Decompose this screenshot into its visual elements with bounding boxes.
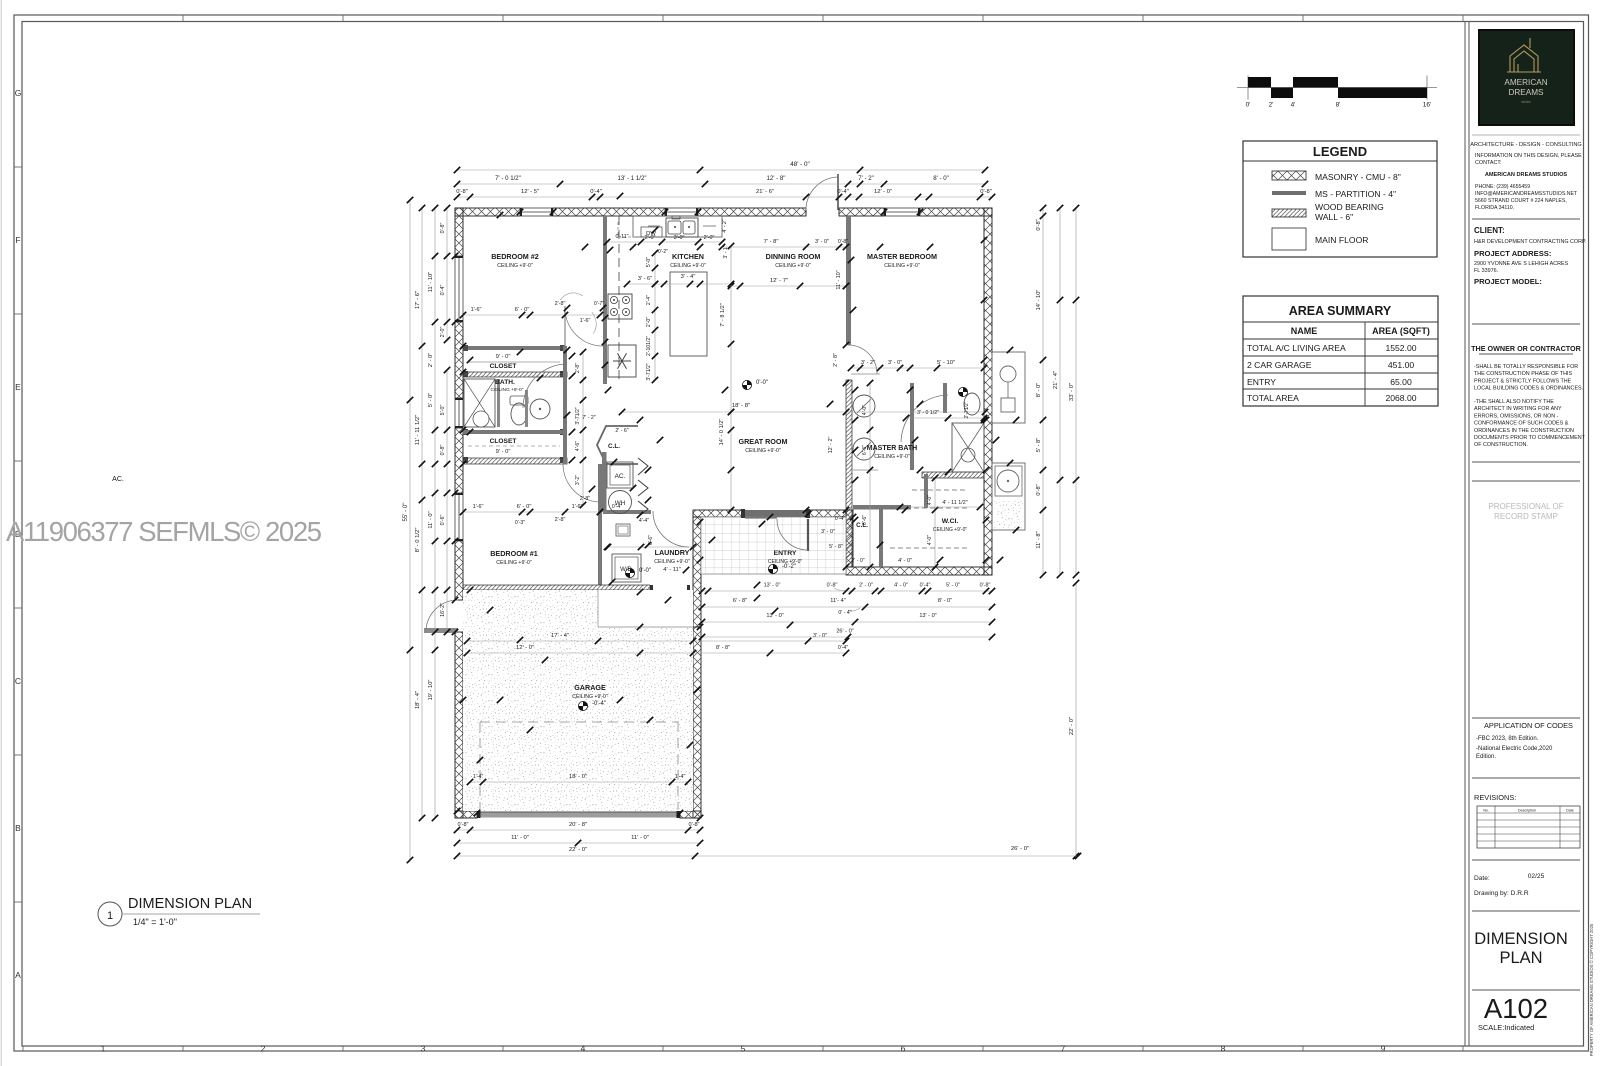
- svg-text:5' - 0": 5' - 0": [428, 393, 434, 408]
- svg-text:2'-8": 2'-8": [575, 363, 581, 373]
- svg-text:5' - 8": 5' - 8": [1036, 438, 1042, 453]
- svg-text:0'-8": 0'-8": [1036, 219, 1042, 230]
- svg-text:-THE SHALL ALSO NOTIFY: -THE SHALL ALSO NOTIFY THE: [1474, 399, 1554, 405]
- svg-text:5'-0": 5'-0": [440, 405, 446, 416]
- svg-text:studio: studio: [1521, 100, 1530, 104]
- svg-text:4: 4: [581, 1044, 586, 1054]
- svg-text:02/25: 02/25: [1528, 873, 1545, 880]
- svg-text:0'-8": 0'-8": [980, 189, 992, 195]
- svg-text:0'-8": 0'-8": [827, 583, 838, 589]
- svg-text:13' - 0": 13' - 0": [766, 613, 783, 619]
- svg-text:3'-0": 3'-0": [674, 235, 685, 241]
- svg-text:3'-71/2": 3'-71/2": [575, 407, 581, 424]
- svg-text:6' - 8": 6' - 8": [733, 598, 747, 604]
- svg-text:2' - 0": 2' - 0": [859, 583, 873, 589]
- svg-text:11' - 0": 11' - 0": [428, 511, 434, 528]
- svg-text:1: 1: [107, 910, 113, 922]
- svg-text:17' - 6": 17' - 6": [415, 291, 421, 309]
- svg-text:2' - 0": 2' - 0": [428, 353, 434, 368]
- svg-text:DOCUMENTS PRIOR TO COMMENCEMEN: DOCUMENTS PRIOR TO COMMENCEMENT: [1474, 435, 1586, 441]
- svg-text:-National Electric Code,2020: -National Electric Code,2020: [1476, 746, 1553, 752]
- svg-text:2900 YVONNE AVE S LEHIGH ACRES: 2900 YVONNE AVE S LEHIGH ACRES: [1474, 261, 1569, 267]
- svg-text:11' - 0": 11' - 0": [511, 835, 529, 841]
- svg-text:9: 9: [1381, 1044, 1386, 1054]
- svg-text:0'-4": 0'-4": [440, 285, 446, 296]
- svg-text:21' - 6": 21' - 6": [756, 189, 774, 195]
- svg-text:0'-8": 0'-8": [440, 223, 446, 234]
- svg-text:Description: Description: [1518, 809, 1536, 813]
- svg-text:C: C: [15, 676, 21, 686]
- svg-text:BATH.: BATH.: [495, 379, 515, 386]
- svg-text:6'-6": 6'-6": [862, 445, 868, 455]
- svg-text:4' - 2": 4' - 2": [722, 219, 728, 232]
- svg-text:8': 8': [1336, 102, 1341, 109]
- svg-text:1552.00: 1552.00: [1385, 343, 1416, 353]
- svg-text:7' - 8 1/2": 7' - 8 1/2": [720, 303, 726, 327]
- svg-text:4' - 0": 4' - 0": [898, 558, 912, 564]
- svg-text:DREAMS: DREAMS: [1508, 88, 1544, 97]
- svg-text:F: F: [15, 235, 20, 245]
- svg-text:MASTER BATH: MASTER BATH: [867, 445, 917, 452]
- svg-text:4'-0": 4'-0": [927, 495, 933, 505]
- svg-text:14' - 10": 14' - 10": [1036, 290, 1042, 311]
- svg-text:KITCHEN: KITCHEN: [672, 252, 704, 261]
- svg-text:11' - 11 1/2": 11' - 11 1/2": [415, 415, 421, 446]
- svg-text:ARCHITECTURE - DESIGN - CONSUL: ARCHITECTURE - DESIGN - CONSULTING: [1470, 142, 1581, 148]
- svg-text:CEILING +9'-0": CEILING +9'-0": [491, 387, 524, 393]
- svg-text:55' - 0": 55' - 0": [402, 503, 409, 522]
- svg-text:2': 2': [1269, 102, 1274, 109]
- svg-text:12' - 0": 12' - 0": [516, 645, 534, 651]
- svg-text:3' - 1": 3' - 1": [723, 245, 729, 258]
- svg-text:0'-4": 0'-4": [920, 583, 931, 589]
- svg-text:DINNING ROOM: DINNING ROOM: [766, 252, 821, 261]
- svg-text:11' - 8": 11' - 8": [1036, 531, 1042, 548]
- svg-text:PROPERTY OF AMERICAN DREAMS ST: PROPERTY OF AMERICAN DREAMS STUDIOS © CO…: [1589, 923, 1594, 1056]
- svg-text:TOTAL AREA: TOTAL AREA: [1247, 393, 1299, 403]
- svg-text:A102: A102: [1484, 993, 1548, 1024]
- svg-text:A11906377 SEFMLS© 2025: A11906377 SEFMLS© 2025: [6, 516, 322, 547]
- svg-text:2'-101/2": 2'-101/2": [646, 336, 652, 356]
- svg-text:4'-4": 4'-4": [639, 518, 649, 524]
- svg-text:MS - PARTITION - 4": MS - PARTITION - 4": [1315, 189, 1396, 199]
- svg-text:12' - 0": 12' - 0": [874, 189, 892, 195]
- svg-text:PROJECT & STRICTLY FOLLOWS: PROJECT & STRICTLY FOLLOWS THE: [1474, 378, 1572, 384]
- svg-text:2068.00: 2068.00: [1385, 393, 1416, 403]
- svg-text:ARCHITECT IN WRITING FOR: ARCHITECT IN WRITING FOR ANY: [1474, 406, 1562, 412]
- svg-text:0'-0": 0'-0": [639, 568, 651, 574]
- svg-text:11'- 4": 11'- 4": [830, 598, 845, 604]
- svg-text:INFORMATION ON THIS DESIGN, PL: INFORMATION ON THIS DESIGN, PLEASE: [1475, 153, 1582, 159]
- svg-text:0'-8": 0'-8": [440, 445, 446, 456]
- svg-text:C.L.: C.L.: [608, 443, 620, 450]
- svg-text:11' - 10": 11' - 10": [836, 270, 842, 289]
- svg-text:17' - 4": 17' - 4": [551, 633, 569, 639]
- svg-text:CEILING +9'-0": CEILING +9'-0": [654, 559, 690, 565]
- svg-text:7' - 8": 7' - 8": [764, 239, 779, 245]
- svg-text:65.00: 65.00: [1390, 377, 1412, 387]
- svg-text:451.00: 451.00: [1388, 360, 1415, 370]
- svg-text:1/4" = 1'-0": 1/4" = 1'-0": [133, 917, 177, 927]
- svg-text:4' - 0": 4' - 0": [894, 583, 908, 589]
- svg-text:2'-8": 2'-8": [555, 301, 566, 307]
- svg-text:20' - 8": 20' - 8": [569, 822, 587, 828]
- svg-text:AREA (SQFT): AREA (SQFT): [1372, 326, 1430, 336]
- svg-text:3'-2": 3'-2": [575, 475, 581, 485]
- svg-text:13' - 1 1/2": 13' - 1 1/2": [617, 175, 646, 182]
- svg-text:NAME: NAME: [1291, 326, 1318, 336]
- svg-text:-0'-4": -0'-4": [592, 701, 606, 707]
- svg-text:G: G: [15, 88, 22, 98]
- svg-text:CEILING +9'-0": CEILING +9'-0": [496, 560, 532, 566]
- svg-text:AMERICAN: AMERICAN: [1504, 78, 1547, 87]
- svg-text:0'-8": 0'-8": [838, 239, 848, 245]
- svg-text:RECORD STAMP: RECORD STAMP: [1494, 512, 1558, 521]
- svg-text:CLIENT:: CLIENT:: [1474, 226, 1505, 235]
- svg-text:8' - 0": 8' - 0": [1036, 383, 1042, 398]
- svg-text:3' - 6": 3' - 6": [638, 276, 652, 282]
- svg-text:18' - 4": 18' - 4": [415, 691, 421, 709]
- svg-text:MASTER BEDROOM: MASTER BEDROOM: [867, 252, 937, 261]
- svg-text:CEILING +9'-0": CEILING +9'-0": [745, 448, 781, 454]
- svg-text:WOOD BEARING: WOOD BEARING: [1315, 202, 1384, 212]
- svg-text:CEILING +9'-0": CEILING +9'-0": [775, 263, 811, 269]
- svg-text:MASONRY - CMU - 8": MASONRY - CMU - 8": [1315, 172, 1401, 182]
- svg-text:SCALE:Indicated: SCALE:Indicated: [1478, 1023, 1534, 1032]
- svg-text:H&R DEVELOPMENT CONTRACTING CO: H&R DEVELOPMENT CONTRACTING CORP.: [1474, 239, 1586, 245]
- svg-text:2' - 6": 2' - 6": [615, 428, 628, 434]
- svg-text:16'-2": 16'-2": [440, 603, 446, 617]
- svg-text:11' - 0": 11' - 0": [631, 835, 649, 841]
- svg-text:1'-6": 1'-6": [471, 307, 482, 313]
- svg-text:1'-4": 1'-4": [473, 774, 484, 780]
- svg-text:ENTRY: ENTRY: [1247, 377, 1276, 387]
- svg-text:0'-4": 0'-4": [612, 504, 622, 510]
- svg-text:14' - 0 1/2": 14' - 0 1/2": [719, 419, 725, 446]
- svg-text:8' - 0 1/2": 8' - 0 1/2": [415, 528, 421, 553]
- svg-text:8' - 8": 8' - 8": [716, 645, 730, 651]
- svg-text:FL 33976.: FL 33976.: [1474, 268, 1498, 274]
- svg-text:2' - 8": 2' - 8": [833, 353, 839, 367]
- svg-text:22' - 0": 22' - 0": [569, 847, 587, 853]
- svg-text:0'-2": 0'-2": [658, 249, 668, 255]
- svg-text:5' - 8": 5' - 8": [829, 544, 843, 550]
- svg-text:B: B: [15, 823, 21, 833]
- svg-text:E: E: [15, 382, 21, 392]
- svg-text:2'-0": 2'-0": [645, 235, 656, 241]
- svg-text:LEGEND: LEGEND: [1313, 144, 1367, 159]
- svg-text:-SHALL BE TOTALLY RESPONSIBLE: -SHALL BE TOTALLY RESPONSIBLE FOR: [1474, 364, 1578, 370]
- svg-text:FLORIDA 34110.: FLORIDA 34110.: [1475, 205, 1514, 211]
- svg-text:WALL - 6": WALL - 6": [1315, 212, 1353, 222]
- svg-text:3' - 4": 3' - 4": [681, 274, 696, 280]
- svg-text:2 CAR GARAGE: 2 CAR GARAGE: [1247, 360, 1312, 370]
- svg-text:THE OWNER OR CONTRACTOR: THE OWNER OR CONTRACTOR: [1471, 344, 1581, 353]
- svg-text:8' - 0": 8' - 0": [938, 598, 952, 604]
- svg-text:ORDINANCES IN THE CONSTRU: ORDINANCES IN THE CONSTRUCTION: [1474, 428, 1574, 434]
- svg-text:GREAT ROOM: GREAT ROOM: [739, 437, 788, 446]
- svg-text:MAIN FLOOR: MAIN FLOOR: [1315, 235, 1368, 245]
- svg-text:PROJECT MODEL:: PROJECT MODEL:: [1474, 277, 1542, 286]
- svg-text:Drawing by: D.R.R: Drawing by: D.R.R: [1474, 890, 1529, 897]
- svg-text:2'-0": 2'-0": [646, 317, 652, 327]
- svg-text:5' - 0": 5' - 0": [946, 583, 960, 589]
- svg-text:No.: No.: [1483, 809, 1489, 813]
- svg-text:0'-8": 0'-8": [689, 822, 700, 828]
- svg-text:CEILING +9'-0": CEILING +9'-0": [497, 263, 533, 269]
- svg-text:ERRORS, OMISSIONS, O: ERRORS, OMISSIONS, OR NON -: [1474, 413, 1559, 419]
- svg-text:12' - 8": 12' - 8": [767, 175, 786, 182]
- svg-text:2'-8": 2'-8": [580, 496, 590, 502]
- svg-text:33' - 0": 33' - 0": [1069, 383, 1075, 401]
- svg-text:CEILING +9'-0": CEILING +9'-0": [933, 527, 967, 533]
- svg-text:0': 0': [1246, 102, 1251, 109]
- svg-text:Edition.: Edition.: [1476, 754, 1496, 760]
- svg-text:12' - 2": 12' - 2": [828, 437, 834, 454]
- svg-text:0'-11": 0'-11": [615, 234, 628, 240]
- svg-text:18' - 0": 18' - 0": [569, 774, 587, 780]
- svg-text:0'-6": 0'-6": [440, 515, 446, 526]
- svg-text:21' - 4": 21' - 4": [1053, 371, 1059, 389]
- svg-text:AC.: AC.: [112, 476, 124, 483]
- svg-text:6' - 0": 6' - 0": [515, 307, 530, 313]
- svg-text:AMERICAN DREAMS STUDIOS: AMERICAN DREAMS STUDIOS: [1485, 172, 1568, 178]
- svg-text:7' - 0 1/2": 7' - 0 1/2": [495, 175, 521, 182]
- svg-text:48' - 0": 48' - 0": [790, 161, 810, 168]
- svg-text:0'-3": 0'-3": [515, 520, 525, 526]
- svg-text:5'-0": 5'-0": [646, 257, 652, 267]
- svg-text:OF CONSTRUCTION.: OF CONSTRUCTION.: [1474, 442, 1528, 448]
- svg-text:-FBC 2023, 8th Edition.: -FBC 2023, 8th Edition.: [1476, 736, 1539, 742]
- svg-text:0'-7": 0'-7": [594, 301, 604, 307]
- svg-text:8' - 0": 8' - 0": [933, 175, 949, 182]
- svg-text:18' - 8": 18' - 8": [732, 403, 750, 409]
- svg-text:8: 8: [1221, 1044, 1226, 1054]
- svg-text:THE CONSTRUCTION PHASE OF: THE CONSTRUCTION PHASE OF THIS: [1474, 371, 1573, 377]
- svg-text:4'-0": 4'-0": [927, 535, 933, 545]
- svg-text:2: 2: [261, 1044, 266, 1054]
- svg-text:0'-0": 0'-0": [756, 380, 768, 386]
- svg-text:5: 5: [741, 1044, 746, 1054]
- svg-text:PROJECT ADDRESS:: PROJECT ADDRESS:: [1474, 249, 1551, 258]
- svg-text:LOCAL BUILDING CODES & ORDINAN: LOCAL BUILDING CODES & ORDINANCES.: [1474, 386, 1583, 392]
- svg-text:PROFESSIONAL OF: PROFESSIONAL OF: [1488, 502, 1563, 511]
- svg-text:1'-4": 1'-4": [675, 774, 686, 780]
- svg-text:AREA SUMMARY: AREA SUMMARY: [1289, 304, 1392, 318]
- svg-text:16': 16': [1423, 102, 1431, 109]
- svg-text:Date:: Date:: [1474, 875, 1490, 882]
- svg-text:4'-0": 4'-0": [862, 405, 868, 415]
- svg-text:13' - 0": 13' - 0": [919, 613, 936, 619]
- svg-text:2'-0": 2'-0": [704, 235, 715, 241]
- svg-text:5660 STRAND COURT # 224 NAPLES: 5660 STRAND COURT # 224 NAPLES,: [1475, 198, 1567, 204]
- svg-text:9' - 0": 9' - 0": [496, 354, 511, 360]
- svg-text:Date: Date: [1566, 809, 1574, 813]
- svg-text:BEDROOM #1: BEDROOM #1: [490, 549, 538, 558]
- svg-text:0'-8": 0'-8": [458, 822, 469, 828]
- svg-text:CEILING +9'-0": CEILING +9'-0": [768, 559, 802, 565]
- svg-text:3: 3: [421, 1044, 426, 1054]
- svg-text:PLAN: PLAN: [1499, 949, 1542, 967]
- svg-text:0'-4": 0'-4": [590, 189, 602, 195]
- svg-text:TOTAL A/C LIVING AREA: TOTAL A/C LIVING AREA: [1247, 343, 1346, 353]
- svg-text:A: A: [15, 970, 21, 980]
- svg-text:CONFORMANCE OF SUCH CODE: CONFORMANCE OF SUCH CODES &: [1474, 421, 1569, 427]
- svg-text:11' - 10": 11' - 10": [428, 272, 434, 292]
- svg-text:2'-71/2": 2'-71/2": [964, 401, 970, 418]
- svg-text:0'-4": 0'-4": [837, 189, 849, 195]
- svg-text:CLOSET: CLOSET: [490, 438, 517, 445]
- svg-text:1'-6": 1'-6": [473, 504, 484, 510]
- svg-text:12' - 7": 12' - 7": [770, 278, 788, 284]
- svg-text:4': 4': [1291, 102, 1296, 109]
- svg-text:1: 1: [101, 1044, 106, 1054]
- svg-text:22' - 0": 22' - 0": [1069, 717, 1075, 735]
- svg-text:DIMENSION PLAN: DIMENSION PLAN: [128, 896, 252, 912]
- svg-text:7' - 2": 7' - 2": [858, 175, 874, 182]
- svg-text:CEILING +9'-0": CEILING +9'-0": [874, 454, 910, 460]
- svg-text:0'-4": 0'-4": [838, 645, 848, 651]
- svg-text:12' - 5": 12' - 5": [521, 189, 539, 195]
- svg-text:2' - 0": 2' - 0": [851, 558, 864, 564]
- svg-text:W.CI.: W.CI.: [942, 518, 959, 525]
- svg-text:3' - 0 1/2": 3' - 0 1/2": [917, 410, 939, 416]
- svg-text:DIMENSION: DIMENSION: [1474, 930, 1568, 948]
- svg-text:7' - 2": 7' - 2": [582, 415, 595, 421]
- svg-text:CEILING +9'-0": CEILING +9'-0": [884, 263, 920, 269]
- svg-text:BEDROOM #2: BEDROOM #2: [491, 252, 539, 261]
- svg-text:2'-4": 2'-4": [646, 295, 652, 305]
- svg-text:CONTACT:: CONTACT:: [1475, 160, 1502, 166]
- svg-text:9' - 0": 9' - 0": [496, 449, 511, 455]
- svg-text:3' - 0": 3' - 0": [813, 633, 827, 639]
- svg-text:13' - 0": 13' - 0": [764, 583, 781, 589]
- svg-text:6: 6: [901, 1044, 906, 1054]
- svg-text:6'-6": 6'-6": [862, 515, 868, 525]
- svg-text:0'-8": 0'-8": [456, 189, 468, 195]
- svg-text:APPLICATION OF CODES: APPLICATION OF CODES: [1484, 721, 1573, 730]
- svg-text:CEILING +9'-0": CEILING +9'-0": [670, 263, 706, 269]
- svg-text:LAUNDRY: LAUNDRY: [655, 548, 690, 557]
- svg-text:26' - 0": 26' - 0": [836, 629, 853, 635]
- svg-text:4'-6": 4'-6": [575, 441, 581, 451]
- svg-text:CLOSET: CLOSET: [490, 363, 517, 370]
- svg-text:CEILING +9'-0": CEILING +9'-0": [572, 694, 608, 700]
- svg-text:2'-0": 2'-0": [440, 327, 446, 338]
- svg-text:2'-8": 2'-8": [555, 517, 566, 523]
- svg-text:7: 7: [1061, 1044, 1066, 1054]
- svg-text:3' - 0": 3' - 0": [815, 239, 829, 245]
- svg-text:AC.: AC.: [615, 473, 626, 480]
- svg-text:0'-8": 0'-8": [980, 583, 991, 589]
- svg-text:4' - 11": 4' - 11": [663, 567, 681, 573]
- svg-text:0'-8": 0'-8": [1036, 484, 1042, 495]
- svg-text:3'-71/2": 3'-71/2": [646, 363, 652, 380]
- svg-text:19' - 10": 19' - 10": [428, 680, 434, 701]
- svg-text:0' - 4": 0' - 4": [838, 610, 851, 616]
- svg-text:26' - 0": 26' - 0": [1011, 846, 1029, 852]
- svg-text:3' - 0": 3' - 0": [888, 360, 902, 366]
- svg-text:ENTRY: ENTRY: [774, 550, 797, 557]
- svg-text:3' - 0": 3' - 0": [821, 529, 835, 535]
- svg-text:1'-6": 1'-6": [580, 318, 591, 324]
- svg-text:0'-4": 0'-4": [835, 516, 845, 522]
- svg-text:REVISIONS:: REVISIONS:: [1474, 793, 1516, 802]
- svg-text:GARAGE: GARAGE: [574, 683, 606, 692]
- svg-text:PHONE: (239) 4655459: PHONE: (239) 4655459: [1475, 184, 1530, 190]
- svg-text:4' - 11 1/2": 4' - 11 1/2": [942, 500, 967, 506]
- svg-text:INFO@AMERICANDREAMSSTUDIOS.NET: INFO@AMERICANDREAMSSTUDIOS.NET: [1475, 191, 1578, 197]
